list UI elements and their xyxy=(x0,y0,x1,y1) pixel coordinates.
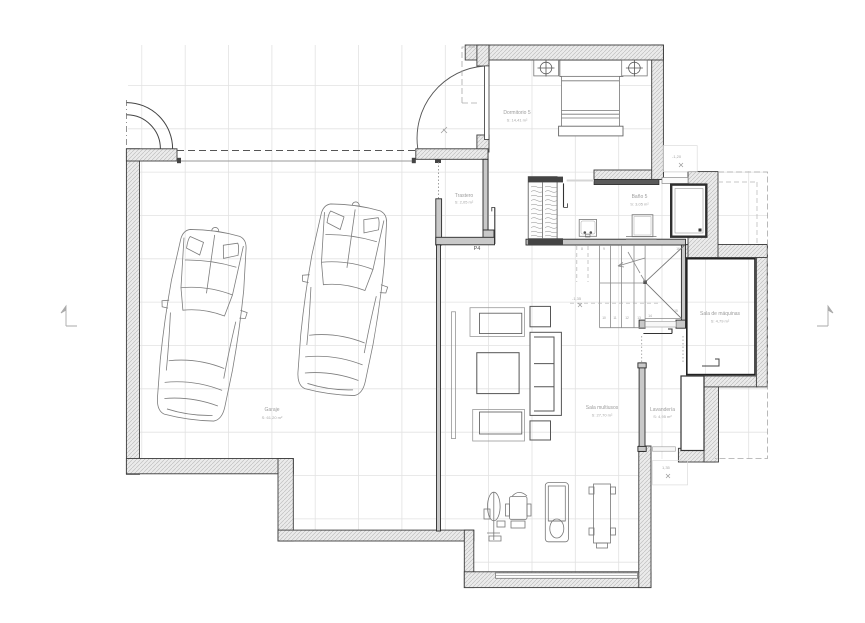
svg-text:Garaje: Garaje xyxy=(264,407,279,413)
svg-text:9: 9 xyxy=(603,247,605,251)
svg-text:8: 8 xyxy=(581,247,583,251)
svg-text:1,35: 1,35 xyxy=(662,465,671,470)
svg-text:S: 14,41 m²: S: 14,41 m² xyxy=(507,118,528,123)
svg-text:10: 10 xyxy=(602,316,606,320)
svg-text:S: 27,70 m²: S: 27,70 m² xyxy=(592,413,613,418)
svg-text:S: 4,79 m²: S: 4,79 m² xyxy=(711,319,730,324)
svg-text:Baño 5: Baño 5 xyxy=(632,194,648,200)
svg-text:-1,20: -1,20 xyxy=(672,154,682,159)
svg-text:12: 12 xyxy=(625,316,629,320)
svg-text:S: 2,05 m²: S: 2,05 m² xyxy=(455,200,474,205)
svg-text:13: 13 xyxy=(637,316,641,320)
svg-text:S: 4,95 m²: S: 4,95 m² xyxy=(653,414,672,419)
svg-text:-1,35: -1,35 xyxy=(572,296,582,301)
svg-text:16: 16 xyxy=(676,247,680,251)
svg-text:Sala multiusos: Sala multiusos xyxy=(586,405,619,411)
svg-text:15: 15 xyxy=(674,309,678,313)
svg-text:Lavandería: Lavandería xyxy=(650,407,675,413)
svg-text:Trastero: Trastero xyxy=(455,193,474,199)
svg-text:11: 11 xyxy=(613,316,617,320)
svg-text:Dormitorio 5: Dormitorio 5 xyxy=(503,110,530,116)
svg-text:14: 14 xyxy=(648,314,652,318)
svg-text:S: 3,05 m²: S: 3,05 m² xyxy=(630,202,649,207)
svg-text:Sala de máquinas: Sala de máquinas xyxy=(700,311,741,317)
svg-text:S: 61,20 m²: S: 61,20 m² xyxy=(262,415,283,420)
svg-text:P4: P4 xyxy=(474,246,481,252)
